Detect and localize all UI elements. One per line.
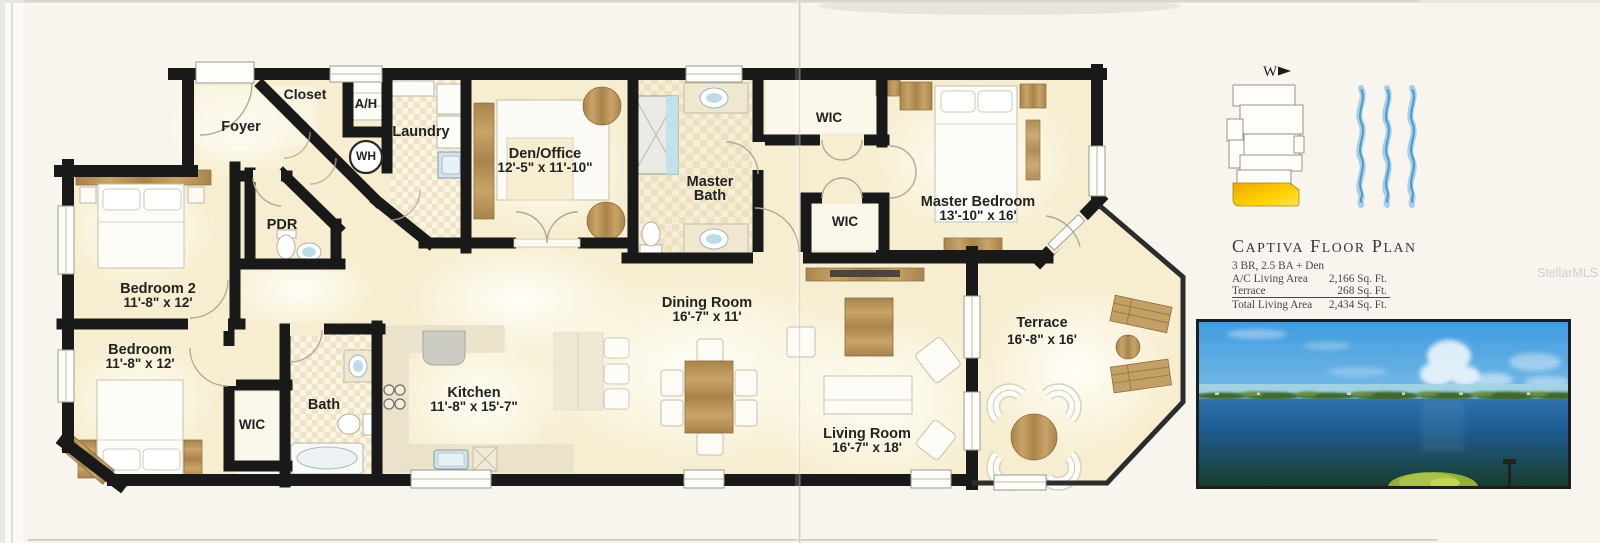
svg-text:StellarMLS: StellarMLS — [1537, 266, 1598, 280]
svg-text:11'-8" x 12': 11'-8" x 12' — [105, 356, 174, 371]
svg-text:16'-8" x 16': 16'-8" x 16' — [1007, 332, 1077, 347]
svg-text:WH: WH — [356, 149, 376, 163]
svg-text:Terrace: Terrace — [1232, 285, 1266, 297]
svg-text:16'-7" x 11': 16'-7" x 11' — [672, 309, 741, 324]
svg-text:Foyer: Foyer — [221, 119, 261, 135]
svg-text:16'-7" x 18': 16'-7" x 18' — [832, 440, 902, 455]
svg-text:A/H: A/H — [355, 96, 377, 111]
svg-text:Closet: Closet — [284, 86, 327, 102]
svg-text:Terrace: Terrace — [1016, 315, 1067, 331]
svg-text:11'-8" x 15'-7": 11'-8" x 15'-7" — [430, 399, 518, 414]
svg-text:13'-10" x 16': 13'-10" x 16' — [939, 208, 1016, 223]
svg-text:PDR: PDR — [267, 217, 298, 233]
svg-text:Total Living Area: Total Living Area — [1232, 299, 1312, 311]
svg-text:12'-5" x 11'-10": 12'-5" x 11'-10" — [497, 160, 592, 175]
svg-text:2,434 Sq. Ft.: 2,434 Sq. Ft. — [1329, 299, 1387, 311]
svg-text:268 Sq. Ft.: 268 Sq. Ft. — [1337, 285, 1387, 297]
svg-text:A/C Living Area: A/C Living Area — [1232, 273, 1308, 285]
svg-text:11'-8" x 12': 11'-8" x 12' — [123, 295, 192, 310]
svg-text:WIC: WIC — [239, 417, 265, 432]
svg-text:W: W — [1263, 64, 1278, 80]
svg-text:Bath: Bath — [694, 188, 726, 204]
svg-text:Laundry: Laundry — [392, 124, 449, 140]
svg-text:WIC: WIC — [816, 110, 842, 125]
svg-text:3 BR, 2.5 BA + Den: 3 BR, 2.5 BA + Den — [1232, 260, 1324, 272]
svg-text:WIC: WIC — [832, 214, 858, 229]
svg-text:Bath: Bath — [308, 397, 340, 413]
svg-text:2,166 Sq. Ft.: 2,166 Sq. Ft. — [1329, 273, 1387, 285]
